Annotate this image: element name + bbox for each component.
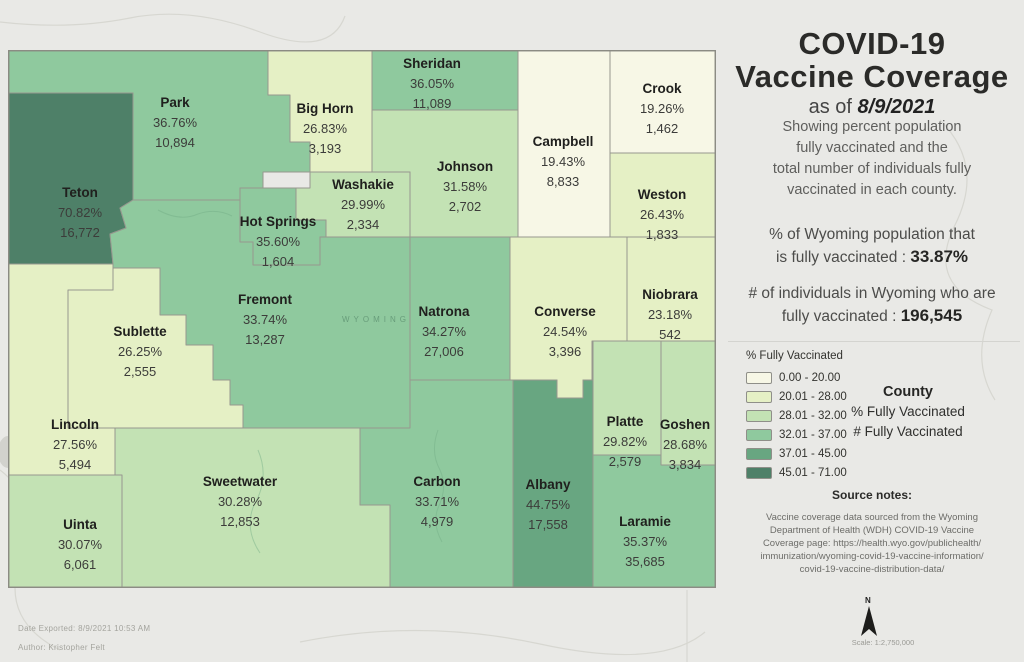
- county-label-name: Weston: [638, 187, 687, 202]
- county-label-count: 1,604: [262, 254, 295, 269]
- legend-title: % Fully Vaccinated: [746, 350, 896, 362]
- county-label-name: Natrona: [418, 304, 469, 319]
- source-line: covid-19-vaccine-distribution-data/: [724, 563, 1020, 576]
- description-line: vaccinated in each county.: [724, 180, 1020, 201]
- county-label-pct: 27.56%: [53, 437, 98, 452]
- legend-range: 37.01 - 45.00: [779, 448, 847, 460]
- source-line: Coverage page: https://health.wyo.gov/pu…: [724, 537, 1020, 550]
- county-label-name: Fremont: [238, 292, 293, 307]
- source-line: Vaccine coverage data sourced from the W…: [724, 511, 1020, 524]
- county-label-pct: 19.43%: [541, 154, 586, 169]
- county-label-name: Carbon: [413, 474, 460, 489]
- county-label-count: 8,833: [547, 174, 580, 189]
- county-label-count: 3,396: [549, 344, 582, 359]
- county-label-count: 10,894: [155, 135, 195, 150]
- county-label-name: Lincoln: [51, 417, 99, 432]
- county-label-name: Sweetwater: [203, 474, 278, 489]
- county-label-name: Goshen: [660, 417, 710, 432]
- county-label-name: Hot Springs: [240, 214, 317, 229]
- label-key-title: County: [828, 382, 988, 402]
- stat-percent-value: 33.87%: [910, 247, 968, 266]
- county-label-pct: 23.18%: [648, 307, 693, 322]
- county-label-count: 2,702: [449, 199, 482, 214]
- legend-range: 45.01 - 71.00: [779, 467, 847, 479]
- legend-row: 45.01 - 71.00: [746, 463, 896, 482]
- county-label-pct: 35.37%: [623, 534, 668, 549]
- stat-line: # of individuals in Wyoming who are: [724, 283, 1020, 305]
- county-label-key: County % Fully Vaccinated # Fully Vaccin…: [828, 382, 988, 442]
- north-arrow-icon: [857, 606, 881, 638]
- county-label-name: Albany: [525, 477, 571, 492]
- legend-row: 37.01 - 45.00: [746, 444, 896, 463]
- county-label-pct: 29.82%: [603, 434, 648, 449]
- county-label-name: Teton: [62, 185, 98, 200]
- county-label-pct: 44.75%: [526, 497, 571, 512]
- page-title-line1: COVID-19: [724, 27, 1020, 60]
- legend-swatch: [746, 372, 772, 384]
- county-label-name: Sheridan: [403, 56, 461, 71]
- county-label-pct: 35.60%: [256, 234, 301, 249]
- county-label-count: 3,193: [309, 141, 342, 156]
- page-title-line2: Vaccine Coverage: [724, 60, 1020, 93]
- county-label-name: Washakie: [332, 177, 394, 192]
- county-label-name: Johnson: [437, 159, 493, 174]
- wyoming-county-map: WYOMING Park36.76%10,894Teton70.82%16,77…: [8, 50, 716, 588]
- county-label-count: 16,772: [60, 225, 100, 240]
- county-label-pct: 26.25%: [118, 344, 163, 359]
- county-label-name: Big Horn: [297, 101, 354, 116]
- county-label-count: 1,462: [646, 121, 679, 136]
- county-label-name: Platte: [607, 414, 644, 429]
- county-label-pct: 24.54%: [543, 324, 588, 339]
- stat-line: % of Wyoming population that: [724, 224, 1020, 246]
- county-label-count: 17,558: [528, 517, 568, 532]
- state-watermark: WYOMING: [342, 315, 410, 324]
- county-label-name: Campbell: [533, 134, 594, 149]
- description-line: fully vaccinated and the: [724, 138, 1020, 159]
- source-notes-title: Source notes:: [724, 488, 1020, 502]
- author: Author: Kristopher Felt: [18, 643, 105, 652]
- description-line: Showing percent population: [724, 117, 1020, 138]
- county-label-name: Converse: [534, 304, 596, 319]
- county-label-pct: 29.99%: [341, 197, 386, 212]
- legend-swatch: [746, 448, 772, 460]
- county-label-pct: 28.68%: [663, 437, 708, 452]
- county-label-count: 542: [659, 327, 681, 342]
- legend-swatch: [746, 429, 772, 441]
- legend-swatch: [746, 410, 772, 422]
- source-notes: Source notes: Vaccine coverage data sour…: [724, 488, 1020, 576]
- stat-count-vaccinated: # of individuals in Wyoming who are full…: [724, 283, 1020, 328]
- county-label-count: 1,833: [646, 227, 679, 242]
- county-label-count: 6,061: [64, 557, 97, 572]
- date-exported: Date Exported: 8/9/2021 10:53 AM: [18, 624, 150, 633]
- county-label-name: Niobrara: [642, 287, 698, 302]
- county-label-count: 35,685: [625, 554, 665, 569]
- county-label-pct: 31.58%: [443, 179, 488, 194]
- panel-divider: [728, 341, 1020, 342]
- legend-swatch: [746, 467, 772, 479]
- county-label-count: 2,555: [124, 364, 157, 379]
- county-label-pct: 36.05%: [410, 76, 455, 91]
- county-label-name: Crook: [642, 81, 681, 96]
- county-label-pct: 33.71%: [415, 494, 460, 509]
- county-label-pct: 26.83%: [303, 121, 348, 136]
- county-label-name: Sublette: [113, 324, 167, 339]
- county-label-pct: 33.74%: [243, 312, 288, 327]
- source-line: Department of Health (WDH) COVID-19 Vacc…: [724, 524, 1020, 537]
- county-label-count: 11,089: [413, 96, 452, 111]
- county-label-pct: 30.07%: [58, 537, 103, 552]
- legend-swatch: [746, 391, 772, 403]
- county-label-pct: 70.82%: [58, 205, 103, 220]
- as-of-date: as of 8/9/2021: [724, 96, 1020, 119]
- description-line: total number of individuals fully: [724, 159, 1020, 180]
- county-label-count: 27,006: [424, 344, 464, 359]
- label-key-line: # Fully Vaccinated: [828, 422, 988, 442]
- county-label-count: 13,287: [245, 332, 285, 347]
- map-export-page: { "panel": { "title_line1": "COVID-19", …: [0, 0, 1024, 662]
- scale-text: Scale: 1:2,750,000: [838, 638, 928, 647]
- county-label-pct: 30.28%: [218, 494, 263, 509]
- county-label-count: 2,334: [347, 217, 380, 232]
- county-label-count: 2,579: [609, 454, 642, 469]
- county-label-name: Uinta: [63, 517, 97, 532]
- source-line: immunization/wyoming-covid-19-vaccine-in…: [724, 550, 1020, 563]
- stat-percent-vaccinated: % of Wyoming population that is fully va…: [724, 224, 1020, 269]
- panel-title-block: COVID-19 Vaccine Coverage as of 8/9/2021: [724, 27, 1020, 119]
- county-label-name: Park: [160, 95, 190, 110]
- county-label-pct: 19.26%: [640, 101, 685, 116]
- description: Showing percent population fully vaccina…: [724, 117, 1020, 201]
- label-key-line: % Fully Vaccinated: [828, 402, 988, 422]
- north-label: N: [865, 596, 871, 605]
- county-label-count: 5,494: [59, 457, 92, 472]
- county-label-pct: 34.27%: [422, 324, 467, 339]
- county-label-name: Laramie: [619, 514, 671, 529]
- county-label-count: 12,853: [220, 514, 260, 529]
- county-label-count: 3,834: [669, 457, 702, 472]
- stat-count-value: 196,545: [901, 306, 962, 325]
- county-label-pct: 36.76%: [153, 115, 198, 130]
- county-label-pct: 26.43%: [640, 207, 685, 222]
- county-label-count: 4,979: [421, 514, 454, 529]
